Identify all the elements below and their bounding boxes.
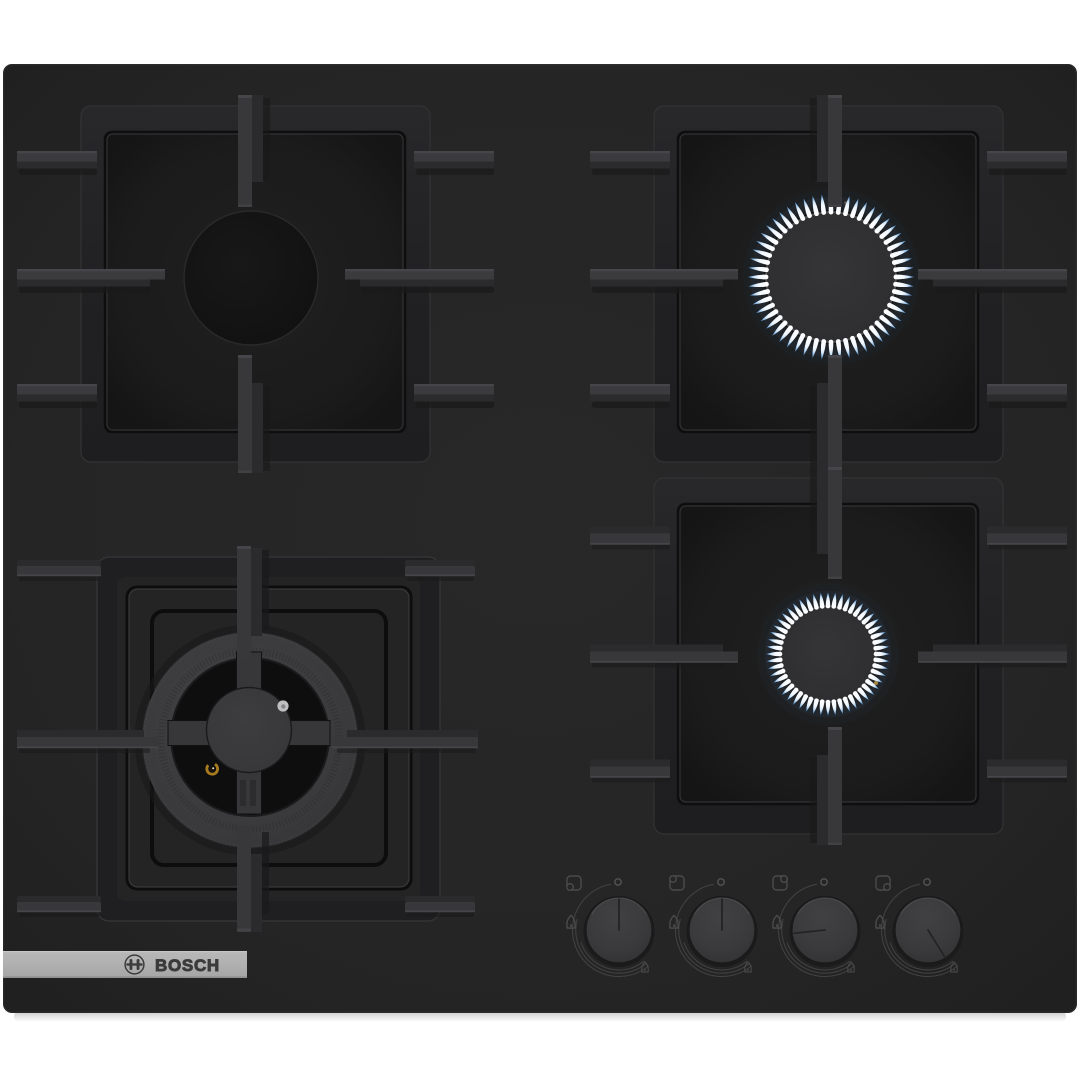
svg-text:BOSCH: BOSCH: [155, 956, 220, 975]
